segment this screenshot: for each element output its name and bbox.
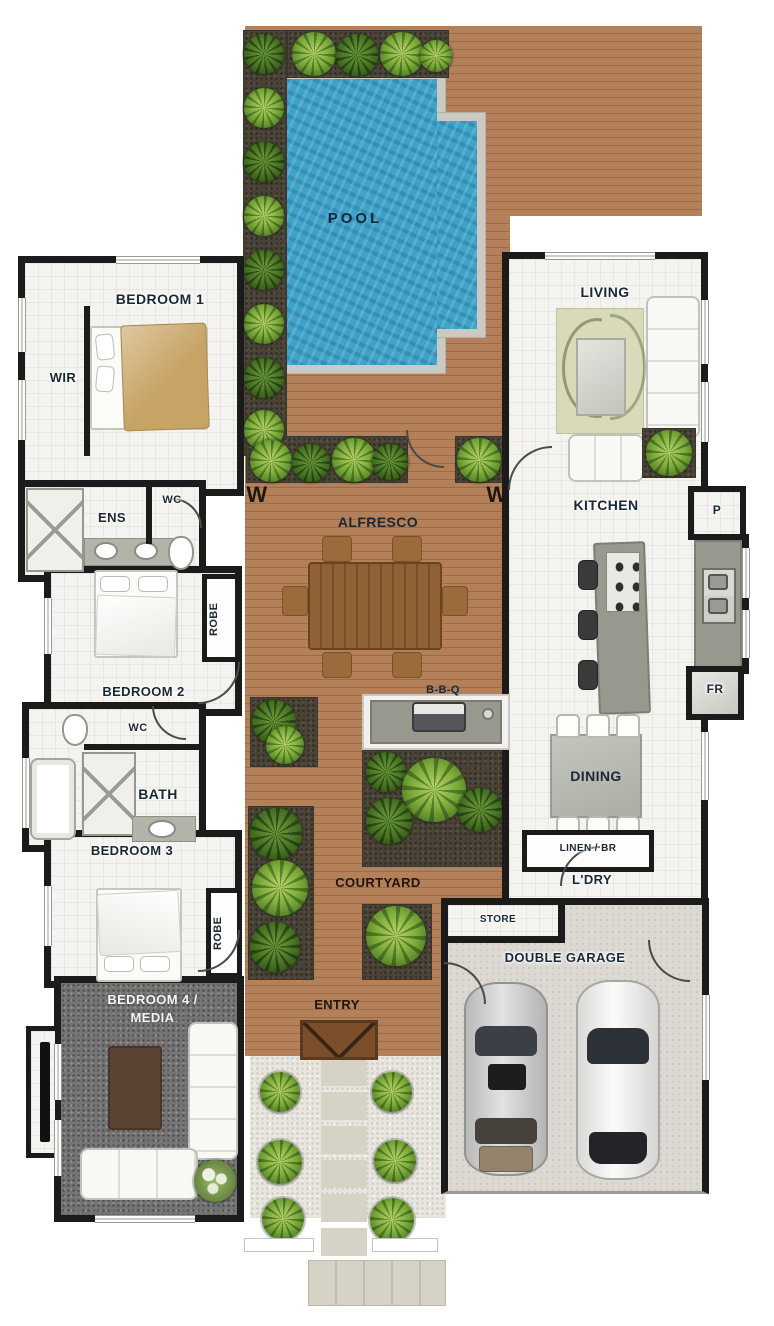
plant	[336, 34, 378, 76]
alfresco-chair	[392, 536, 422, 562]
bath-partition-wall	[84, 744, 206, 750]
plant	[370, 1198, 414, 1242]
oven-door	[708, 598, 728, 614]
duvet-bedroom1	[120, 323, 210, 432]
window	[701, 732, 709, 800]
fridge-label: FR	[700, 682, 730, 696]
plant	[646, 430, 692, 476]
plant	[250, 922, 300, 972]
plant	[372, 444, 408, 480]
alfresco-chair	[392, 652, 422, 678]
window	[742, 610, 750, 658]
window	[54, 1044, 62, 1100]
window	[44, 886, 52, 946]
window	[44, 598, 52, 654]
car-silver-windshield	[475, 1026, 537, 1056]
laundry-label: L'DRY	[552, 872, 632, 887]
plant	[250, 808, 302, 860]
store-wall-bottom	[441, 936, 565, 943]
plant	[372, 1072, 412, 1112]
store-label: STORE	[458, 914, 538, 925]
plant	[260, 1072, 300, 1112]
pillow	[140, 956, 170, 972]
plant	[366, 752, 406, 792]
window	[22, 758, 30, 828]
bbq-label: B-B-Q	[414, 684, 472, 696]
plant	[380, 32, 424, 76]
alfresco-chair	[282, 586, 308, 616]
window	[742, 548, 750, 598]
plant	[244, 250, 284, 290]
window	[701, 382, 709, 442]
window	[116, 256, 200, 264]
window	[701, 300, 709, 364]
entry-double-door	[300, 1020, 378, 1060]
alfresco-label: ALFRESCO	[326, 514, 430, 530]
dining-chair	[556, 714, 580, 738]
pillow	[104, 956, 134, 972]
pantry-label: P	[702, 503, 732, 517]
bedroom2-label: BEDROOM 2	[86, 684, 201, 699]
plant	[457, 438, 501, 482]
cooktop	[606, 552, 640, 612]
car-silver-sunroof	[488, 1064, 526, 1090]
toilet-ensuite	[168, 536, 194, 570]
plant	[266, 726, 304, 764]
garage-label: DOUBLE GARAGE	[480, 950, 650, 965]
plant	[244, 304, 284, 344]
plant	[252, 860, 308, 916]
duvet-bedroom3	[96, 890, 181, 956]
sofa-media-bottom	[80, 1148, 198, 1200]
basin	[148, 820, 176, 838]
oven-door	[708, 574, 728, 590]
bedroom4-label-line1: BEDROOM 4 /	[90, 992, 215, 1007]
basin	[134, 542, 158, 560]
window-marker-w-right: W	[480, 482, 514, 508]
coffee-table-media	[108, 1046, 162, 1130]
linen-label: LINEN / BR	[530, 843, 646, 854]
porch-wall-right	[372, 1238, 438, 1252]
stool	[578, 610, 598, 640]
duvet-bedroom2	[95, 595, 177, 658]
alfresco-chair	[442, 586, 468, 616]
bbq-grill	[412, 702, 466, 732]
plant	[458, 788, 502, 832]
plant	[244, 88, 284, 128]
plant	[244, 34, 284, 74]
armchair-living	[568, 434, 644, 482]
wc-ens-label: WC	[152, 494, 192, 506]
floor-plan: POOL	[0, 0, 774, 1326]
porch-wall-left	[244, 1238, 314, 1252]
plant	[262, 1198, 304, 1240]
kitchen-label: KITCHEN	[562, 497, 650, 513]
window	[95, 1215, 195, 1223]
coffee-table-living	[576, 338, 626, 416]
bedroom4-label-line2: MEDIA	[90, 1010, 215, 1025]
pillow	[100, 576, 130, 592]
plant	[250, 440, 292, 482]
wir-label: WIR	[40, 370, 86, 385]
toilet-wc	[62, 714, 88, 746]
shower-ensuite	[26, 488, 84, 572]
living-label: LIVING	[568, 284, 642, 300]
bathtub	[30, 758, 76, 840]
store-wall-right	[558, 898, 565, 943]
pillow	[138, 576, 168, 592]
window	[545, 252, 655, 260]
car-white-rear-window	[589, 1132, 647, 1164]
sofa-living	[646, 296, 700, 438]
stool	[578, 660, 598, 690]
plant	[244, 142, 284, 182]
stepping-stone-path	[321, 1058, 367, 1260]
car-white-windshield	[587, 1028, 649, 1064]
window	[18, 298, 26, 352]
stool	[578, 560, 598, 590]
bath-label: BATH	[126, 786, 190, 802]
plant	[244, 358, 284, 398]
entry-label: ENTRY	[302, 997, 372, 1012]
pool-water-ext	[437, 121, 477, 329]
alfresco-chair	[322, 652, 352, 678]
pillow	[95, 365, 115, 392]
plant	[258, 1140, 302, 1184]
plant	[244, 196, 284, 236]
plant	[374, 1140, 416, 1182]
robe3-label: ROBE	[212, 902, 224, 964]
wc-hall-label: WC	[118, 722, 158, 734]
car-silver-boot	[479, 1146, 533, 1172]
bedroom1-label: BEDROOM 1	[90, 291, 230, 307]
pool-label: POOL	[300, 210, 410, 227]
alfresco-chair	[322, 536, 352, 562]
car-silver-rear-window	[475, 1118, 537, 1144]
plant	[420, 40, 452, 72]
basin	[94, 542, 118, 560]
plant	[332, 438, 376, 482]
plant	[292, 444, 330, 482]
plant	[366, 906, 426, 966]
plant	[366, 798, 412, 844]
wc-divider-wall	[146, 482, 152, 544]
plant	[292, 32, 336, 76]
alfresco-table	[308, 562, 442, 650]
plant	[402, 758, 466, 822]
ens-label: ENS	[86, 510, 138, 525]
front-steps	[308, 1260, 446, 1306]
window	[54, 1120, 62, 1176]
bbq-knob	[482, 708, 494, 720]
window-marker-w-left: W	[240, 482, 274, 508]
window	[702, 995, 710, 1080]
dining-label: DINING	[558, 768, 634, 784]
tv-unit	[40, 1042, 50, 1142]
dining-chair	[586, 714, 610, 738]
bedroom3-label: BEDROOM 3	[72, 843, 192, 858]
pillow	[95, 333, 116, 361]
robe2-label: ROBE	[208, 588, 220, 650]
dining-chair	[616, 714, 640, 738]
window	[18, 380, 26, 440]
sofa-media-right	[188, 1022, 238, 1160]
plant	[194, 1160, 236, 1202]
courtyard-label: COURTYARD	[322, 875, 434, 890]
